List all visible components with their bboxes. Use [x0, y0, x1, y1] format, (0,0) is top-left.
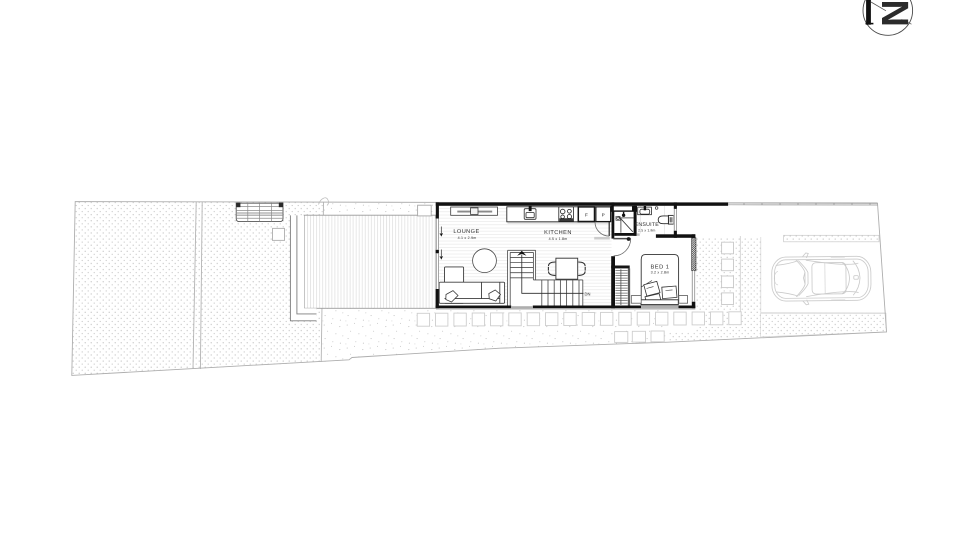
svg-text:4.1 x 2.9m: 4.1 x 2.9m: [458, 236, 477, 240]
svg-text:2.5 x 1.8m: 2.5 x 1.8m: [638, 228, 655, 232]
svg-text:DN: DN: [585, 292, 591, 297]
svg-text:F: F: [585, 212, 588, 217]
svg-text:3.2 x 2.8m: 3.2 x 2.8m: [651, 271, 670, 275]
svg-text:4.5 x 1.8m: 4.5 x 1.8m: [549, 237, 568, 241]
svg-text:ENSUITE: ENSUITE: [635, 222, 660, 228]
svg-text:LOUNGE: LOUNGE: [453, 229, 479, 235]
svg-text:P: P: [602, 212, 605, 217]
svg-text:KITCHEN: KITCHEN: [544, 230, 572, 236]
svg-text:N: N: [873, 0, 915, 27]
svg-text:BED 1: BED 1: [651, 264, 670, 270]
